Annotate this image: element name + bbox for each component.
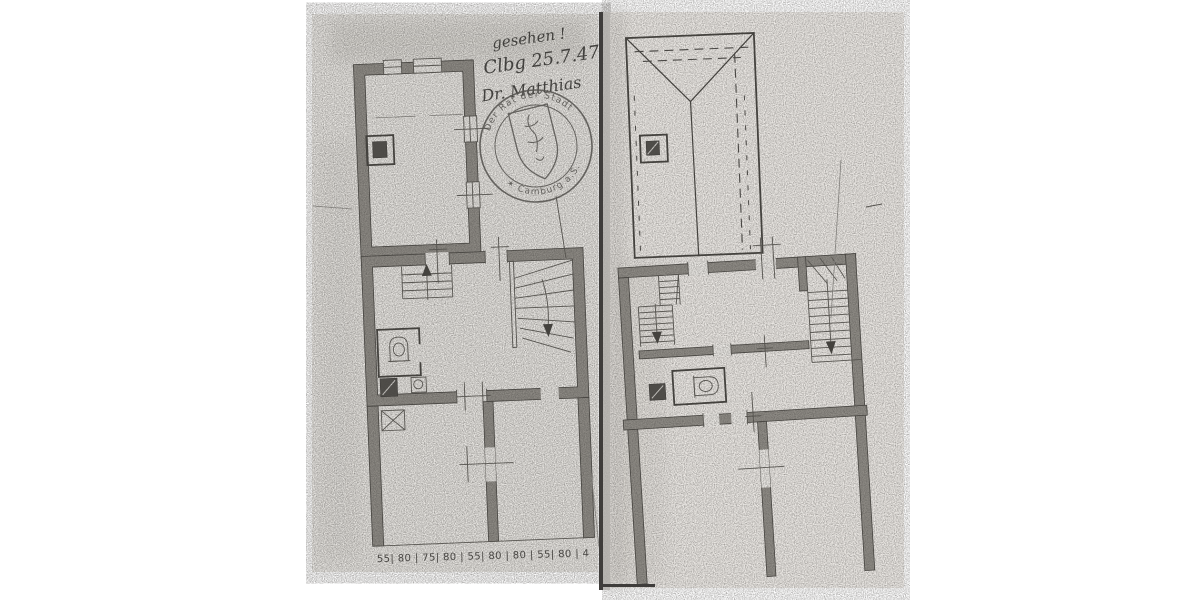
scan-canvas: gesehen ! Clbg 25.7.47 Dr. Matthias Der … [0, 0, 1200, 600]
page-edge-corner [601, 584, 655, 587]
right-page [608, 12, 904, 588]
chimney-symbol [649, 383, 666, 400]
chimney-symbol [380, 378, 398, 397]
page-edge-shade [603, 12, 610, 590]
floor-plan-scan: gesehen ! Clbg 25.7.47 Dr. Matthias Der … [0, 0, 1200, 600]
left-page: gesehen ! Clbg 25.7.47 Dr. Matthias Der … [312, 14, 605, 572]
door-opening [485, 447, 496, 481]
paper-texture [318, 140, 360, 560]
page-edge-line [599, 12, 603, 590]
